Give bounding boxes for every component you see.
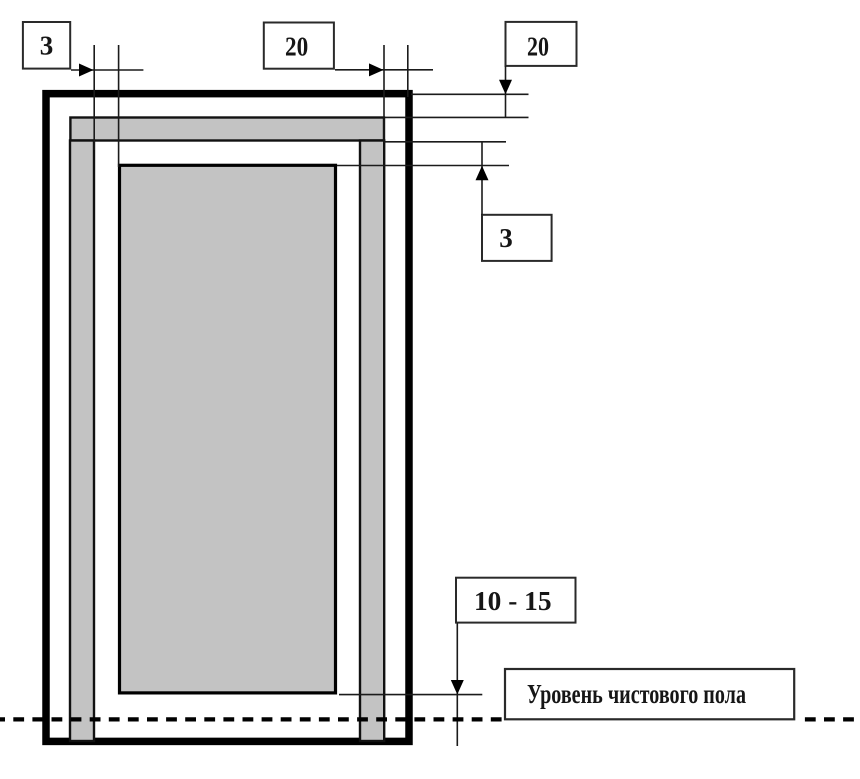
svg-text:20: 20 bbox=[285, 32, 308, 62]
svg-text:10 - 15: 10 - 15 bbox=[474, 586, 552, 616]
svg-text:20: 20 bbox=[527, 31, 549, 61]
svg-text:3: 3 bbox=[40, 31, 54, 61]
svg-text:3: 3 bbox=[499, 223, 513, 253]
svg-text:Уровень чистового пола: Уровень чистового пола bbox=[527, 679, 746, 709]
